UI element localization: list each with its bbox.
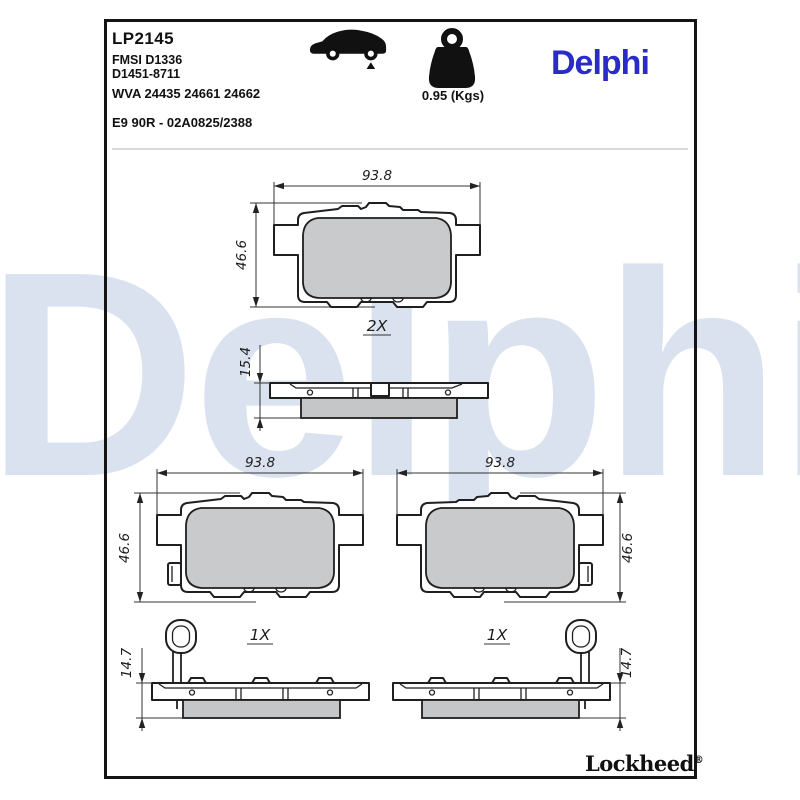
bottom-right-pad-quantity: 1X <box>484 626 510 644</box>
svg-text:15.4: 15.4 <box>238 347 254 377</box>
delphi-logo: Delphi <box>551 44 649 83</box>
registered-mark: ® <box>694 755 704 766</box>
lockheed-logo-text: Lockheed <box>585 751 694 776</box>
svg-text:2X: 2X <box>367 317 388 335</box>
bottom-left-pad-quantity: 1X <box>247 626 273 644</box>
weight-value: 0.95 (Kgs) <box>407 88 499 103</box>
top-pad-side-view <box>270 383 488 418</box>
svg-text:93.8: 93.8 <box>485 455 515 471</box>
svg-text:46.6: 46.6 <box>234 240 250 270</box>
bottom-right-pad-front-view <box>397 493 603 597</box>
svg-text:1X: 1X <box>250 626 271 644</box>
svg-text:1X: 1X <box>487 626 508 644</box>
bottom-right-wear-indicator-tab <box>579 563 592 585</box>
svg-text:46.6: 46.6 <box>620 533 636 563</box>
svg-text:46.6: 46.6 <box>117 533 133 563</box>
svg-text:14.7: 14.7 <box>619 648 635 678</box>
homologation-number: E9 90R - 02A0825/2388 <box>112 115 252 130</box>
svg-text:93.8: 93.8 <box>362 168 392 184</box>
top-pad-quantity: 2X <box>363 317 391 335</box>
part-number: LP2145 <box>112 29 174 49</box>
weight-icon <box>423 28 481 90</box>
spec-sheet: Delphi LP2145 FMSI D1336 D1451-8711 WVA … <box>0 0 800 800</box>
bottom-left-pad-front-view <box>157 493 363 597</box>
svg-text:93.8: 93.8 <box>245 455 275 471</box>
bottom-left-wear-indicator-tab <box>168 563 181 585</box>
fmsi-code: FMSI D1336 <box>112 53 182 67</box>
svg-text:14.7: 14.7 <box>119 648 135 678</box>
lockheed-logo: Lockheed® <box>585 751 703 776</box>
fmsi-code-2: D1451-8711 <box>112 67 180 81</box>
car-rear-axle-icon <box>308 27 388 69</box>
top-pad-front-view <box>274 203 480 307</box>
wva-codes: WVA 24435 24661 24662 <box>112 86 260 101</box>
